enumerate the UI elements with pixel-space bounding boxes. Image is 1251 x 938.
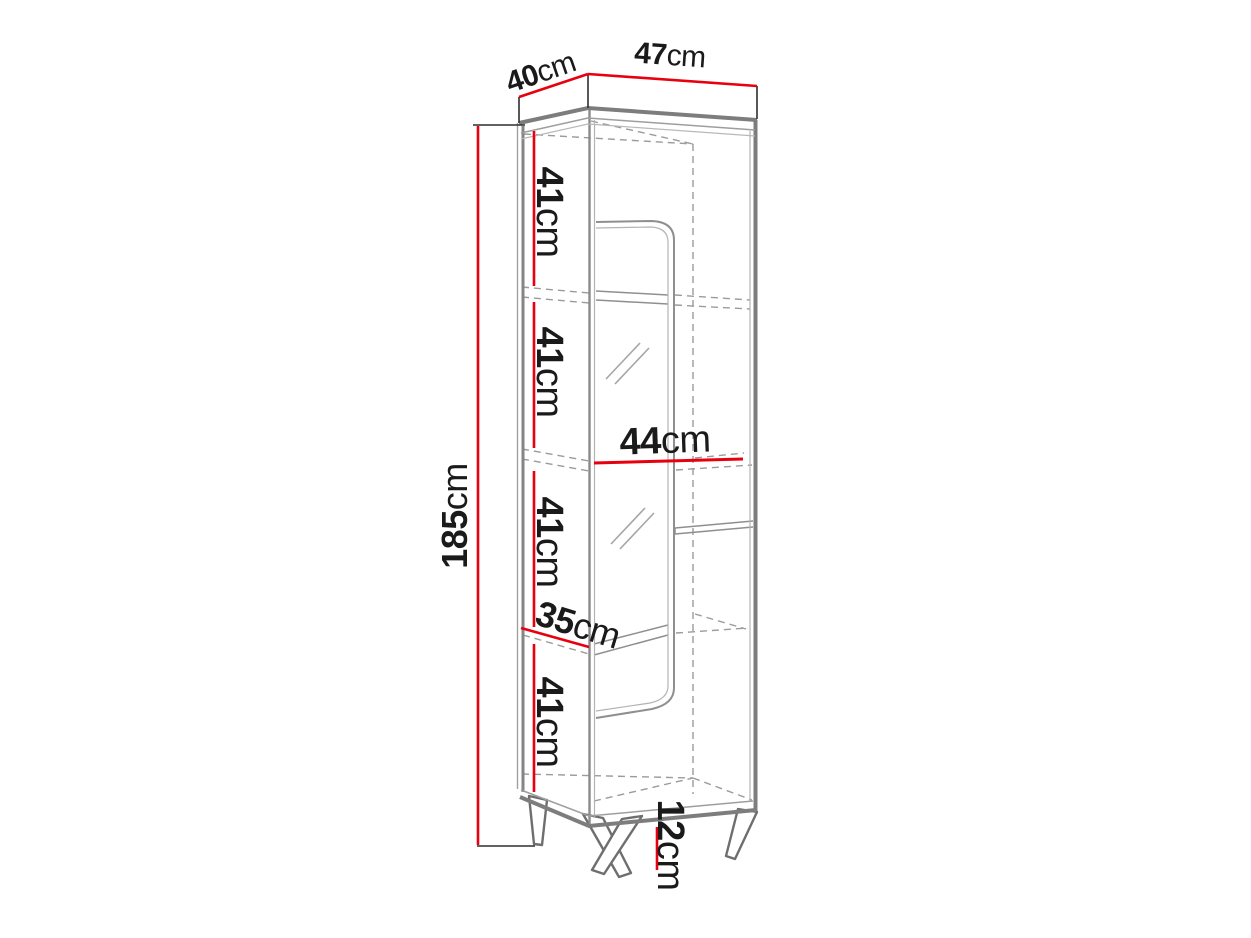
- cabinet-line-drawing: [0, 0, 1251, 938]
- dim-unit-section-3: cm: [528, 538, 570, 588]
- dim-label-width: 47cm: [633, 39, 706, 74]
- dim-value-section-2: 41: [528, 327, 570, 368]
- dim-value-leg-height: 12: [649, 800, 691, 841]
- dim-label-section-3: 41cm: [530, 497, 568, 588]
- cabinet-legs: [529, 796, 757, 877]
- cabinet-bottom-panel: [520, 790, 756, 826]
- dim-unit-section-4: cm: [528, 718, 570, 768]
- dim-label-section-2: 41cm: [530, 327, 568, 418]
- dim-value-section-4: 41: [528, 677, 570, 718]
- dim-label-shelf-width: 44cm: [619, 420, 711, 461]
- dim-label-section-1: 41cm: [530, 167, 568, 258]
- dim-label-section-4: 41cm: [530, 677, 568, 768]
- dim-value-section-3: 41: [528, 497, 570, 538]
- dim-unit-leg-height: cm: [649, 841, 691, 891]
- dim-unit-shelf-width: cm: [660, 418, 711, 462]
- dim-unit-height-total: cm: [434, 463, 475, 510]
- dim-label-leg-height: 12cm: [651, 800, 689, 891]
- dim-label-height-total: 185cm: [437, 463, 473, 569]
- dim-value-section-1: 41: [528, 167, 570, 208]
- dimension-lines-red: [478, 74, 757, 870]
- dim-unit-width: cm: [666, 39, 707, 75]
- cabinet-top-panel: [519, 108, 757, 139]
- dim-unit-section-1: cm: [528, 208, 570, 258]
- leg-front-right: [726, 809, 757, 859]
- furniture-dimension-diagram: 40cm 47cm 185cm 41cm 41cm 44cm 41cm 35cm…: [0, 0, 1251, 938]
- dim-value-shelf-width: 44: [619, 420, 662, 463]
- dim-unit-section-2: cm: [528, 368, 570, 418]
- dim-line-width-47: [588, 74, 757, 86]
- dim-value-width: 47: [633, 37, 668, 72]
- dim-value-height-total: 185: [434, 510, 475, 569]
